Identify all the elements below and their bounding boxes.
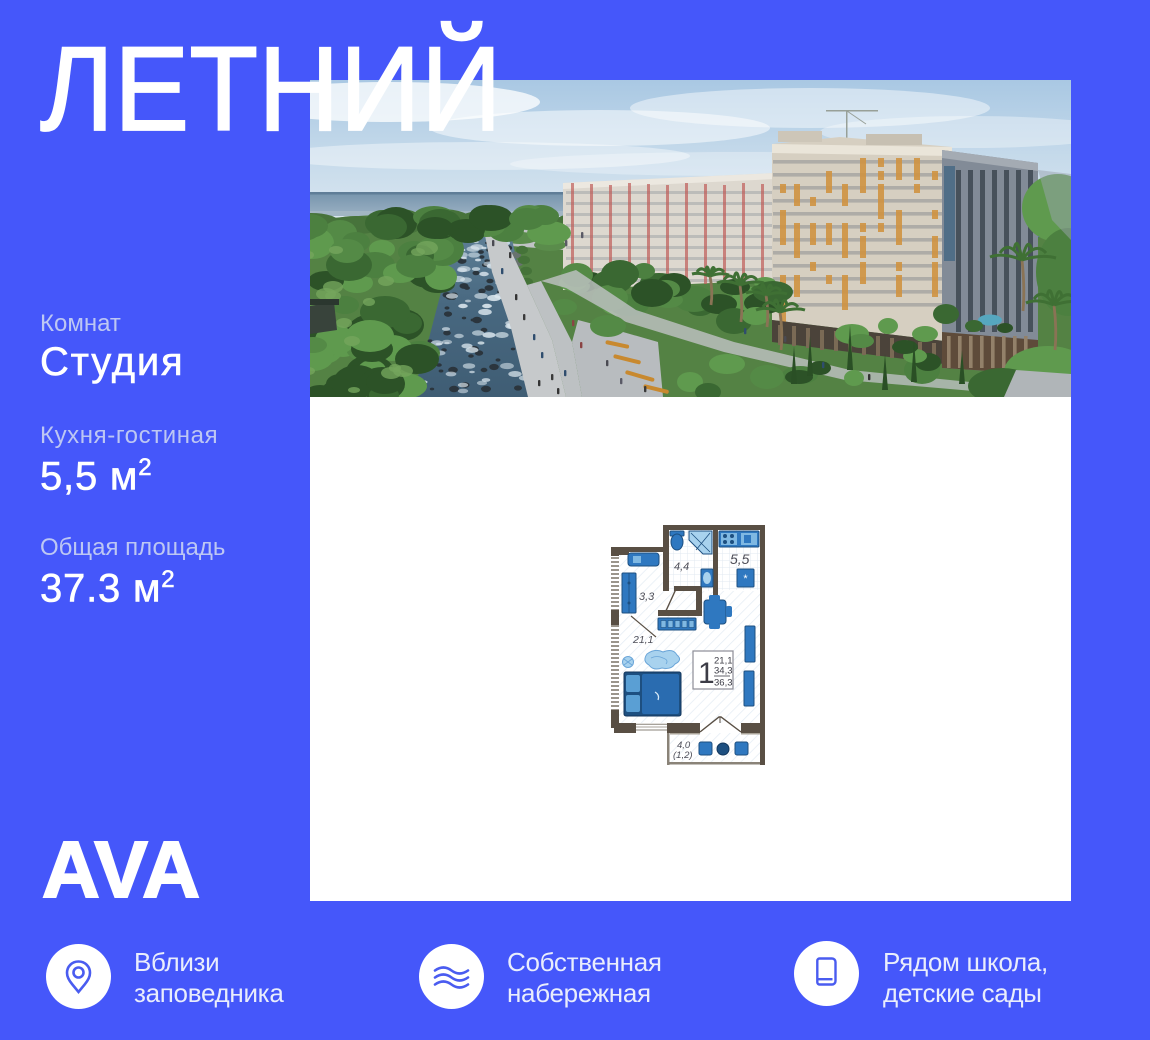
svg-text:3,3: 3,3 bbox=[639, 591, 655, 603]
svg-text:34,3: 34,3 bbox=[714, 666, 733, 677]
svg-text:*: * bbox=[743, 573, 748, 585]
svg-text:1: 1 bbox=[698, 657, 715, 690]
svg-text:(1,2): (1,2) bbox=[673, 750, 693, 761]
svg-text:21,1: 21,1 bbox=[632, 634, 653, 646]
svg-text:36,3: 36,3 bbox=[714, 678, 733, 689]
svg-text:4,4: 4,4 bbox=[674, 561, 689, 573]
svg-text:5,5: 5,5 bbox=[730, 551, 750, 567]
